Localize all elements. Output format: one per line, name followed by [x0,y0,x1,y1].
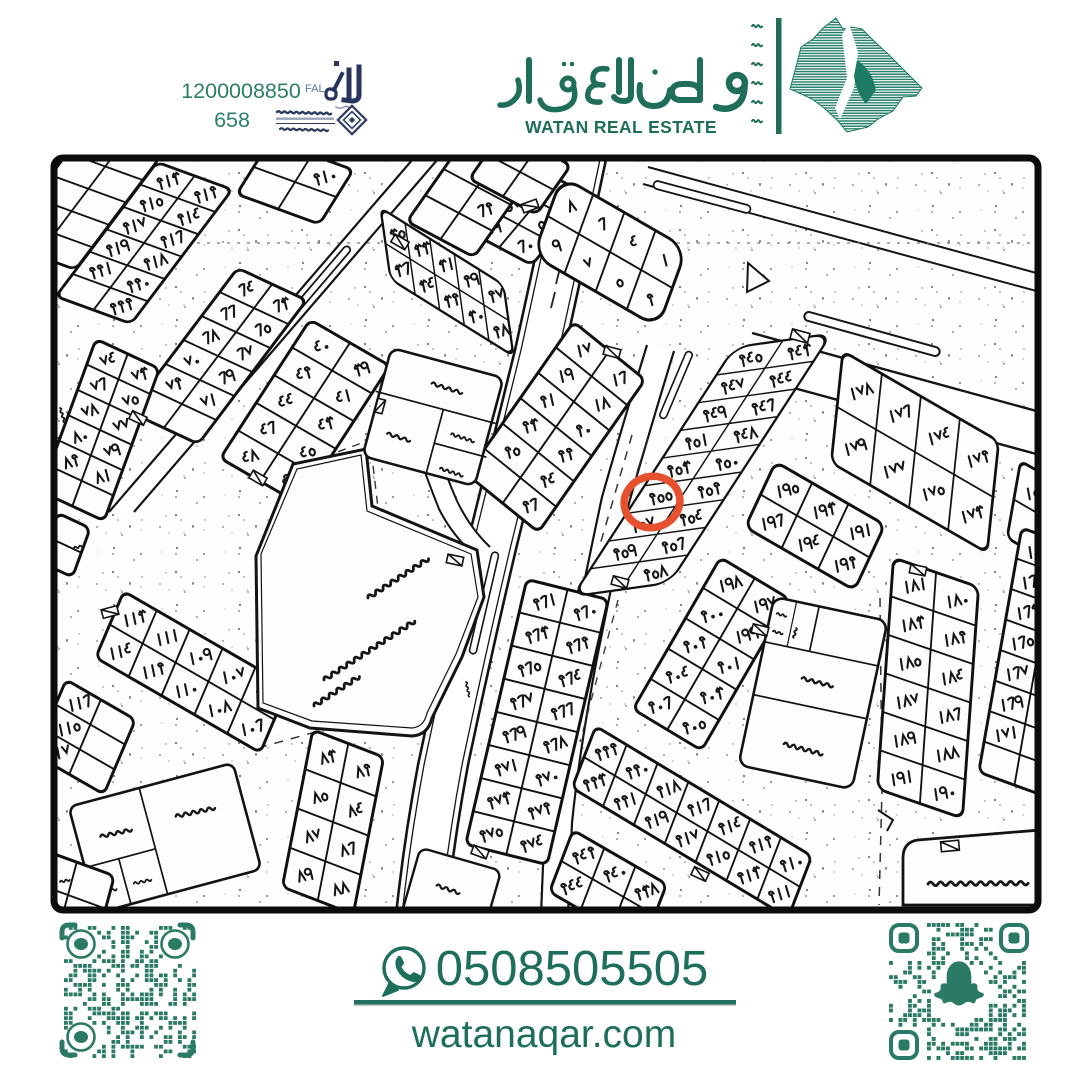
svg-text:watanaqar.com: watanaqar.com [411,1013,677,1056]
svg-text:1200008850: 1200008850 [181,79,301,103]
svg-text:658: 658 [214,108,250,132]
svg-text:FAL: FAL [305,83,325,95]
svg-text:0508505505: 0508505505 [436,942,709,996]
svg-text:WATAN REAL ESTATE: WATAN REAL ESTATE [525,117,717,137]
